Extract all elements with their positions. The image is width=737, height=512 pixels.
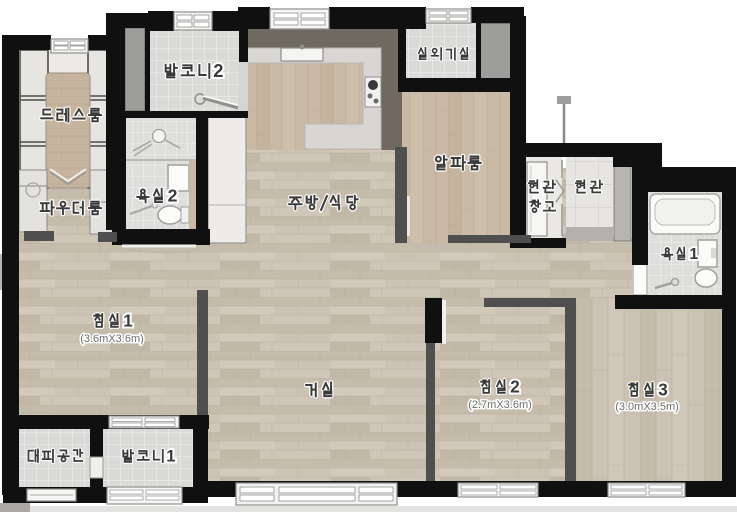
svg-text:3: 3 (658, 381, 668, 400)
svg-text:2: 2 (510, 378, 520, 397)
svg-text:(2.7mX3.6m): (2.7mX3.6m) (468, 399, 532, 411)
svg-text:(3.0mX3.5m): (3.0mX3.5m) (615, 401, 679, 413)
svg-text:1: 1 (166, 447, 175, 465)
svg-text:1: 1 (123, 312, 133, 331)
svg-text:2: 2 (168, 186, 178, 206)
svg-text:(3.6mX3.6m): (3.6mX3.6m) (80, 333, 144, 345)
svg-text:2: 2 (213, 60, 223, 81)
svg-text:1: 1 (689, 246, 698, 263)
